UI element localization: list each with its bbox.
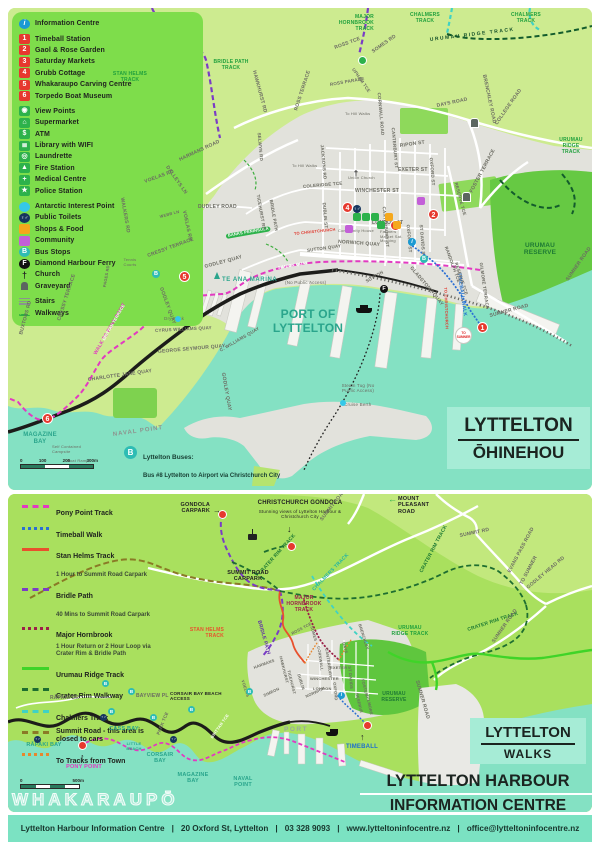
track-label: URUMAU RIDGE TRACK bbox=[553, 138, 589, 155]
marker-3-icon: 3 bbox=[19, 57, 30, 67]
ferry-icon: F bbox=[19, 259, 30, 269]
direction-label: TO CHRISTCHURCH bbox=[443, 287, 449, 329]
bus-line: Bus #8 Lyttelton to Airport via Christch… bbox=[143, 473, 280, 479]
map-marker-6: 6 bbox=[42, 413, 53, 424]
left-arrow-icon: ← bbox=[388, 494, 397, 504]
antarctic-icon bbox=[19, 202, 30, 212]
amenity-icon bbox=[371, 213, 379, 221]
map-marker-1: 1 bbox=[477, 322, 488, 333]
legend-label: ATM bbox=[35, 131, 50, 138]
bay-label: CASS BAY bbox=[108, 726, 140, 732]
legend-label: Fire Station bbox=[35, 165, 75, 172]
footer-name: Lyttelton Harbour Information Centre bbox=[21, 824, 165, 833]
map-poster: iInformation Centre 1Timeball Station 2G… bbox=[0, 0, 600, 849]
timeball-swatch bbox=[22, 527, 49, 530]
bus-stop-icon: B bbox=[124, 446, 137, 459]
track-label: MAJOR HORNBROOK TRACK bbox=[328, 15, 374, 32]
bus-title: Lyttelton Buses: bbox=[143, 454, 194, 461]
track-label: URUMAU RIDGE TRACK bbox=[390, 626, 430, 638]
poi-label: GONDOLA CARPARK bbox=[158, 502, 210, 515]
gondola-cabin-icon bbox=[248, 534, 257, 540]
street-label: ST DAVIDS bbox=[347, 666, 354, 689]
road-label: BAYVIEW PL bbox=[136, 694, 169, 700]
bus-stop-icon: B bbox=[102, 680, 109, 687]
walks-map-title: LYTTELTON WALKS bbox=[470, 718, 586, 764]
bay-label: RĀPAKI BAY bbox=[26, 742, 62, 748]
legend-label: Stairs bbox=[35, 298, 55, 305]
hornbrook-swatch bbox=[22, 627, 49, 630]
title-line: LYTTELTON HARBOUR bbox=[360, 772, 592, 795]
viewpoint-icon: ◉ bbox=[19, 106, 30, 116]
scale-tick: 300m bbox=[86, 458, 98, 463]
walk-name: Timeball Walk bbox=[56, 532, 102, 539]
town-tracks-swatch bbox=[22, 753, 49, 756]
track-label: CHALMERS TRACK bbox=[407, 13, 443, 25]
walk-name: Urumau Ridge Track bbox=[56, 672, 124, 679]
marker-1-icon: 1 bbox=[19, 34, 30, 44]
scale-bar: 0 500m bbox=[20, 778, 84, 789]
chalmers-swatch bbox=[22, 710, 49, 713]
bridle-path-swatch bbox=[22, 588, 49, 591]
bay-label: LITTLE BEACH bbox=[121, 742, 147, 751]
title-line: ŌHINEHOU bbox=[447, 443, 590, 463]
note-label: (No Public Access) bbox=[285, 280, 326, 285]
note-label: Tennis Courts bbox=[120, 258, 140, 267]
legend-label: View Points bbox=[35, 108, 75, 115]
area-label: URUMAU RESERVE bbox=[518, 242, 562, 257]
footer-sep: | bbox=[275, 824, 277, 833]
road-label: WINCHESTER ST bbox=[355, 189, 399, 195]
ferry-terminal-icon: F bbox=[380, 285, 388, 293]
legend-label: Gaol & Rose Garden bbox=[35, 47, 105, 54]
walks-legend-row: Stan Helms Track1 Hour to Summit Road Ca… bbox=[22, 545, 237, 581]
footer-phone: 03 328 9093 bbox=[285, 824, 331, 833]
map-marker-2: 2 bbox=[428, 209, 439, 220]
toilets-icon: ♀♂ bbox=[353, 205, 361, 213]
legend-numbered-row: 2Gaol & Rose Garden bbox=[19, 45, 196, 56]
street-label: EXETER bbox=[330, 666, 347, 671]
toilets-icon: ♀♂ bbox=[100, 714, 107, 721]
poi-label: SUMMIT ROAD CARPARK bbox=[220, 570, 276, 583]
amenity-icon bbox=[353, 213, 361, 221]
title-line: WALKS bbox=[470, 747, 586, 761]
police-icon: ★ bbox=[19, 186, 30, 196]
supermarket-icon: ⌂ bbox=[19, 118, 30, 128]
walks-legend-row: Chalmers Track bbox=[22, 707, 237, 725]
note-label: Steam Tug (No Public Access) bbox=[336, 383, 380, 393]
legend-feature-row: Shops & Food bbox=[19, 224, 196, 235]
legend-label: Grubb Cottage bbox=[35, 70, 85, 77]
track-start-icon bbox=[358, 56, 367, 65]
map-marker-5: 5 bbox=[179, 271, 190, 282]
poi-label: PONY POINT bbox=[64, 764, 104, 770]
legend-amenity-row: $ATM bbox=[19, 129, 196, 140]
walks-legend-row: Urumau Ridge Track bbox=[22, 664, 237, 682]
poi-label: CORSAIR BAY BEACH ACCESS bbox=[170, 691, 224, 701]
legend-numbered-row: 1Timeball Station bbox=[19, 33, 196, 44]
legend-label: Police Station bbox=[35, 188, 83, 195]
legend-amenity-row: ★Police Station bbox=[19, 185, 196, 196]
stan-helms-swatch bbox=[22, 548, 49, 551]
road-label: MOUNT PLEASANT ROAD bbox=[398, 496, 440, 515]
note-label: Self Contained Campsite bbox=[52, 445, 84, 454]
legend-label: Medical Centre bbox=[35, 176, 86, 183]
ship-icon bbox=[356, 308, 372, 313]
amenity-icon bbox=[377, 221, 385, 229]
bus-stop-icon: B bbox=[420, 255, 428, 263]
scale-bar: 0 100 200 300m bbox=[20, 458, 98, 469]
legend-label: Shops & Food bbox=[35, 226, 84, 233]
library-icon: ≣ bbox=[19, 141, 30, 151]
info-centre-title: LYTTELTON HARBOUR INFORMATION CENTRE bbox=[360, 772, 592, 812]
legend-label: Supermarket bbox=[35, 119, 79, 126]
town-map-panel: iInformation Centre 1Timeball Station 2G… bbox=[8, 8, 592, 490]
timeball-dot bbox=[363, 721, 372, 730]
legend-label: Timeball Station bbox=[35, 36, 91, 43]
footer-address: 20 Oxford St, Lyttelton bbox=[181, 824, 269, 833]
to-sumner-sign: TO SUMNER bbox=[455, 327, 472, 344]
down-arrow-icon: ↓ bbox=[287, 524, 292, 534]
marker-4-icon: 4 bbox=[19, 68, 30, 78]
footer-sep: | bbox=[457, 824, 459, 833]
track-label: CHALMERS TRACK bbox=[508, 13, 544, 25]
marker-5-icon: 5 bbox=[19, 80, 30, 90]
legend-label: Antarctic Interest Point bbox=[35, 203, 114, 210]
legend-label: Community bbox=[35, 237, 74, 244]
laundrette-icon: ◎ bbox=[19, 152, 30, 162]
pony-point-swatch bbox=[22, 505, 49, 508]
legend-label: Public Toilets bbox=[35, 214, 81, 221]
footer-sep: | bbox=[172, 824, 174, 833]
crater-rim-swatch bbox=[22, 688, 49, 691]
title-line: INFORMATION CENTRE bbox=[360, 795, 592, 812]
walks-legend-row: To Tracks from Town bbox=[22, 750, 237, 768]
amenity-icon bbox=[362, 213, 370, 221]
area-label: TE ANA MARINA bbox=[222, 277, 277, 284]
graveyard-icon bbox=[462, 192, 471, 202]
bus-stop-icon: B bbox=[108, 708, 115, 715]
note-label: To Hill Walks bbox=[292, 164, 317, 169]
antarctic-point-icon bbox=[175, 316, 181, 322]
street-label: OXFORD bbox=[332, 682, 338, 701]
legend-label: Laundrette bbox=[35, 153, 72, 160]
toilets-icon: ♀♂ bbox=[34, 736, 41, 743]
area-label: PORT bbox=[284, 726, 308, 733]
fire-station-icon: ▲ bbox=[19, 163, 30, 173]
walks-legend-row: Timeball Walk bbox=[22, 524, 237, 542]
street-label: WINCHESTER bbox=[310, 677, 339, 682]
bay-label: CORSAIR BAY bbox=[142, 752, 178, 765]
road-label: RĀPAKI DR bbox=[50, 696, 79, 702]
walk-desc: 1 Hour Return or 2 Hour Loop via Crater … bbox=[56, 644, 166, 658]
antarctic-point-icon bbox=[340, 400, 346, 406]
walks-legend-row: Bridle Path40 Mins to Summit Road Carpar… bbox=[22, 585, 237, 621]
sailboat-icon bbox=[214, 272, 220, 279]
scale-tick: 100 bbox=[39, 458, 47, 463]
scale-segments bbox=[20, 784, 80, 789]
footer-bar: Lyttelton Harbour Information Centre | 2… bbox=[8, 815, 592, 842]
track-label: STAN HELMS TRACK bbox=[107, 72, 153, 84]
walk-name: Major Hornbrook bbox=[56, 632, 112, 639]
title-line: LYTTELTON bbox=[458, 415, 578, 441]
footer-email: office@lytteltoninfocentre.nz bbox=[467, 824, 580, 833]
track-label: MAJOR HORNBROOK TRACK bbox=[280, 596, 328, 613]
legend-amenity-row: ◉View Points bbox=[19, 106, 196, 117]
footer-website: www.lytteltoninfocentre.nz bbox=[347, 824, 451, 833]
walk-name: Bridle Path bbox=[56, 593, 93, 600]
map-marker-4: 4 bbox=[342, 202, 353, 213]
legend-info-row: iInformation Centre bbox=[19, 18, 196, 29]
pony-point-dot bbox=[78, 741, 87, 750]
legend-label: Bus Stops bbox=[35, 249, 71, 256]
area-label: PORT OF LYTTELTON bbox=[258, 308, 358, 336]
medical-icon: + bbox=[19, 175, 30, 185]
scale-tick: 500m bbox=[72, 778, 84, 783]
bay-label: MAGAZINE BAY bbox=[172, 772, 214, 785]
shops-icon bbox=[19, 224, 30, 234]
graveyard-icon bbox=[470, 118, 479, 128]
legend-label: Saturday Markets bbox=[35, 58, 95, 65]
track-label: BRIDLE PATH TRACK bbox=[210, 60, 252, 72]
bus-stop-icon: B bbox=[19, 247, 30, 257]
bus-info: B Lyttelton Buses: Bus #8 Lyttelton to A… bbox=[124, 446, 364, 490]
area-label: URUMAU RESERVE bbox=[372, 692, 416, 704]
walk-desc: 1 Hour to Summit Road Carpark bbox=[56, 572, 156, 579]
bus-stop-icon: B bbox=[188, 706, 195, 713]
shops-icon bbox=[393, 221, 401, 229]
scale-tick: 0 bbox=[20, 458, 23, 463]
toilets-icon: ♀♂ bbox=[19, 213, 30, 223]
info-icon: i bbox=[19, 19, 30, 29]
bus-stop-icon: B bbox=[150, 714, 157, 721]
area-label: NAVAL POINT bbox=[226, 776, 260, 789]
urumau-swatch bbox=[22, 667, 49, 670]
atm-icon: $ bbox=[19, 129, 30, 139]
walk-name: Stan Helms Track bbox=[56, 553, 114, 560]
ship-icon bbox=[326, 732, 338, 736]
footer-sep: | bbox=[337, 824, 339, 833]
poi-label: Community House bbox=[338, 229, 374, 234]
bus-stop-icon: B bbox=[128, 688, 135, 695]
gondola-base-dot bbox=[287, 542, 296, 551]
legend-label: Torpedo Boat Museum bbox=[35, 93, 112, 100]
shops-icon bbox=[385, 213, 393, 221]
note-label: To Hill Walks bbox=[345, 112, 370, 117]
legend-label: Information Centre bbox=[35, 20, 99, 27]
poi-label: Farmers Market Sat. Morning bbox=[380, 230, 410, 244]
bus-stop-icon: B bbox=[152, 270, 160, 278]
church-icon: † bbox=[352, 170, 360, 178]
legend-label: Diamond Harbour Ferry bbox=[35, 260, 116, 267]
legend-numbered-row: 3Saturday Markets bbox=[19, 56, 196, 67]
road-label: EXETER ST bbox=[398, 168, 428, 174]
scale-tick: 200 bbox=[63, 458, 71, 463]
up-arrow-icon: ↑ bbox=[80, 752, 85, 762]
whakaraupo-label: WHAKARAUPŌ bbox=[12, 790, 179, 810]
info-centre-icon: i bbox=[338, 692, 345, 699]
legend-amenity-row: ◎Laundrette bbox=[19, 151, 196, 162]
community-icon bbox=[19, 236, 30, 246]
scale-tick: 0 bbox=[20, 778, 23, 783]
bus-stop-icon: B bbox=[246, 688, 253, 695]
marker-6-icon: 6 bbox=[19, 91, 30, 101]
graveyard-icon bbox=[19, 281, 30, 291]
legend-numbered-row: 6Torpedo Boat Museum bbox=[19, 90, 196, 101]
legend-label: Church bbox=[35, 271, 60, 278]
up-arrow-icon: ↑ bbox=[360, 732, 365, 742]
info-centre-icon: i bbox=[408, 238, 416, 246]
poi-label: TIMEBALL bbox=[346, 744, 378, 751]
scale-segments bbox=[20, 464, 94, 469]
town-map-title: LYTTELTON ŌHINEHOU bbox=[447, 407, 590, 469]
note-label: Cruise Berth bbox=[344, 402, 371, 407]
legend-label: Library with WIFI bbox=[35, 142, 93, 149]
gondola-carpark-dot bbox=[218, 510, 227, 519]
walks-map-panel: Pony Point Track Timeball Walk Stan Helm… bbox=[8, 494, 592, 812]
walk-name: Pony Point Track bbox=[56, 510, 113, 517]
church-icon: † bbox=[19, 270, 30, 280]
community-icon bbox=[345, 225, 353, 233]
marker-2-icon: 2 bbox=[19, 45, 30, 55]
title-line: LYTTELTON bbox=[481, 724, 575, 745]
legend-amenity-row: ≣Library with WIFI bbox=[19, 140, 196, 151]
track-label: STAN HELMS TRACK bbox=[176, 628, 224, 640]
walk-desc: 40 Mins to Summit Road Carpark bbox=[56, 612, 156, 619]
community-icon bbox=[417, 197, 425, 205]
legend-amenity-row: ⌂Supermarket bbox=[19, 117, 196, 128]
toilets-icon: ♀♂ bbox=[170, 736, 177, 743]
summit-road-swatch bbox=[22, 731, 49, 734]
road-label: DUDLEY ROAD bbox=[198, 205, 237, 211]
